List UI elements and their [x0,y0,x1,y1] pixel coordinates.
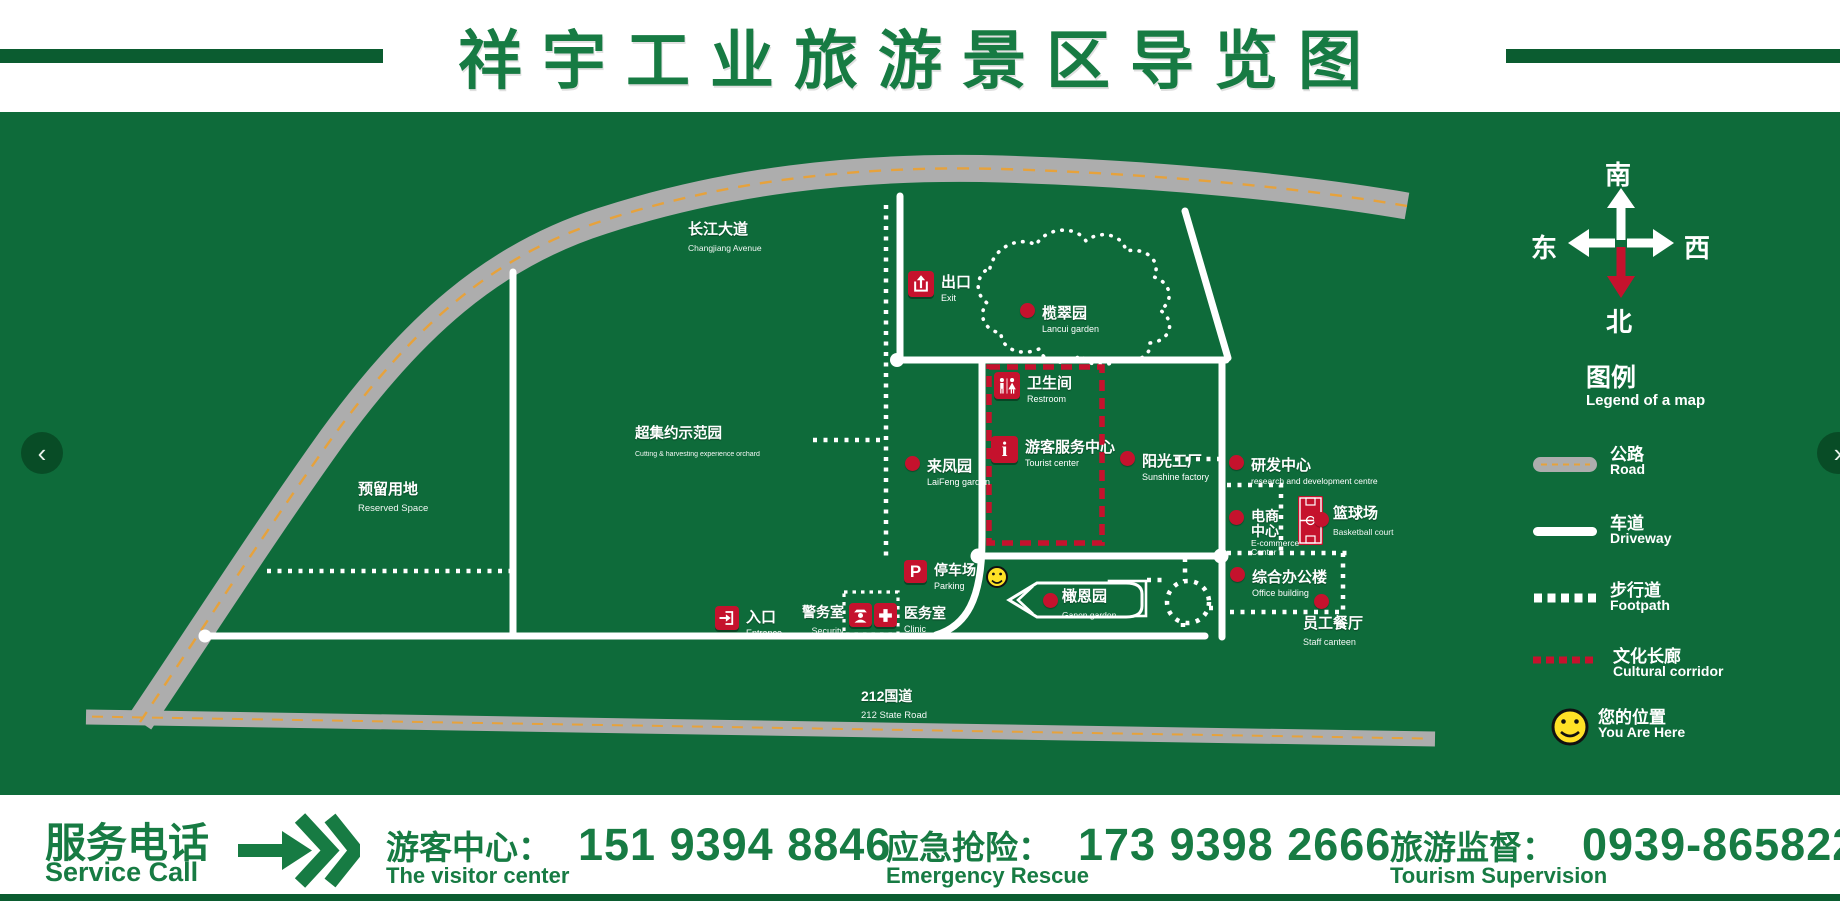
poi-dot-icon [1229,455,1244,470]
poi-tourist-center: i 游客服务中心Tourist center [991,436,1115,468]
poi-dot-icon [1314,512,1329,527]
poi-basketball-court: 篮球场 Basketball court [1333,505,1393,540]
poi-rnd-center: 研发中心research and development centre [1229,454,1378,486]
poi-staff-canteen: 员工餐厅 Staff canteen [1303,615,1363,650]
poi-parking: P 停车场Parking [904,560,976,591]
service-call-label-en: Service Call [45,857,198,888]
legend-corridor-label-en: Cultural corridor [1613,663,1723,679]
poi-ecommerce-center: 电商 中心 E-commerce Center [1229,509,1299,557]
poi-clinic: 医务室Clinic [874,603,946,634]
carousel-prev-button[interactable]: ‹ [21,432,63,474]
poi-office-building: 综合办公楼Office building [1230,566,1327,598]
entrance-icon [715,606,739,630]
poi-dot-icon [1314,594,1329,609]
poi-dot-icon [1229,510,1244,525]
legend-footpath-label-en: Footpath [1610,597,1670,613]
label-212-state-road: 212国道 212 State Road [861,688,927,723]
footer-bar: 服务电话 Service Call 游客中心： The visitor cent… [0,795,1840,901]
label-changjiang-avenue: 长江大道 Changjiang Avenue [688,221,762,256]
compass-north-label: 北 [1606,302,1632,339]
compass-south-label: 南 [1605,155,1631,192]
poi-dot-icon [1020,303,1035,318]
chevron-right-icon: › [1834,438,1840,469]
emergency-rescue-phone: 173 9398 2666 [1078,819,1391,871]
poi-sunshine-factory: 阳光工厂Sunshine factory [1120,450,1209,482]
legend-title: 图例 [1586,358,1636,394]
legend-driveway-label-en: Driveway [1610,530,1671,546]
tourism-supervision-label-en: Tourism Supervision [1390,863,1607,889]
page-title: 祥宇工业旅游景区导览图 [0,10,1840,102]
poi-security-label: 警务室 Security [760,604,844,639]
poi-dot-icon [1230,567,1245,582]
compass-west-label: 西 [1684,228,1710,265]
legend-you-are-here-label-en: You Are Here [1598,724,1685,740]
info-icon: i [991,436,1018,463]
emergency-rescue-label-en: Emergency Rescue [886,863,1089,889]
tourism-supervision-label: 旅游监督： [1390,821,1555,869]
chevron-left-icon: ‹ [38,438,47,469]
poi-lancui-garden: 榄翠园Lancui garden [1020,302,1099,334]
triple-chevron-icon [238,812,360,888]
security-icon [849,603,872,627]
parking-icon: P [904,560,927,583]
bottom-edge-bar [0,894,1840,901]
tourism-supervision-phone: 0939-8658222 [1582,819,1840,871]
legend-subtitle: Legend of a map [1586,392,1705,409]
visitor-center-label: 游客中心： [386,821,551,869]
poi-dot-icon [1043,593,1058,608]
restroom-icon [994,372,1020,399]
exit-icon [908,271,934,297]
visitor-center-phone: 151 9394 8846 [578,819,891,871]
scenic-area-guide-map: 祥宇工业旅游景区导览图 [0,0,1840,901]
visitor-center-label-en: The visitor center [386,863,569,889]
compass-east-label: 东 [1531,228,1557,265]
poi-ganen-garden: 橄恩园 Ganen garden [1062,588,1116,623]
poi-restroom: 卫生间Restroom [994,372,1072,404]
poi-laifeng-garden: 来凤园LaiFeng garden [905,455,990,487]
poi-dot-icon [905,456,920,471]
legend-road-label-en: Road [1610,461,1645,477]
emergency-rescue-label: 应急抢险： [886,821,1051,869]
poi-dot-icon [1120,451,1135,466]
poi-exit: 出口Exit [908,271,971,303]
label-orchard: 超集约示范园 Cutting & harvesting experience o… [635,425,760,460]
clinic-cross-icon [874,603,897,627]
label-reserved-space: 预留用地 Reserved Space [358,481,428,516]
